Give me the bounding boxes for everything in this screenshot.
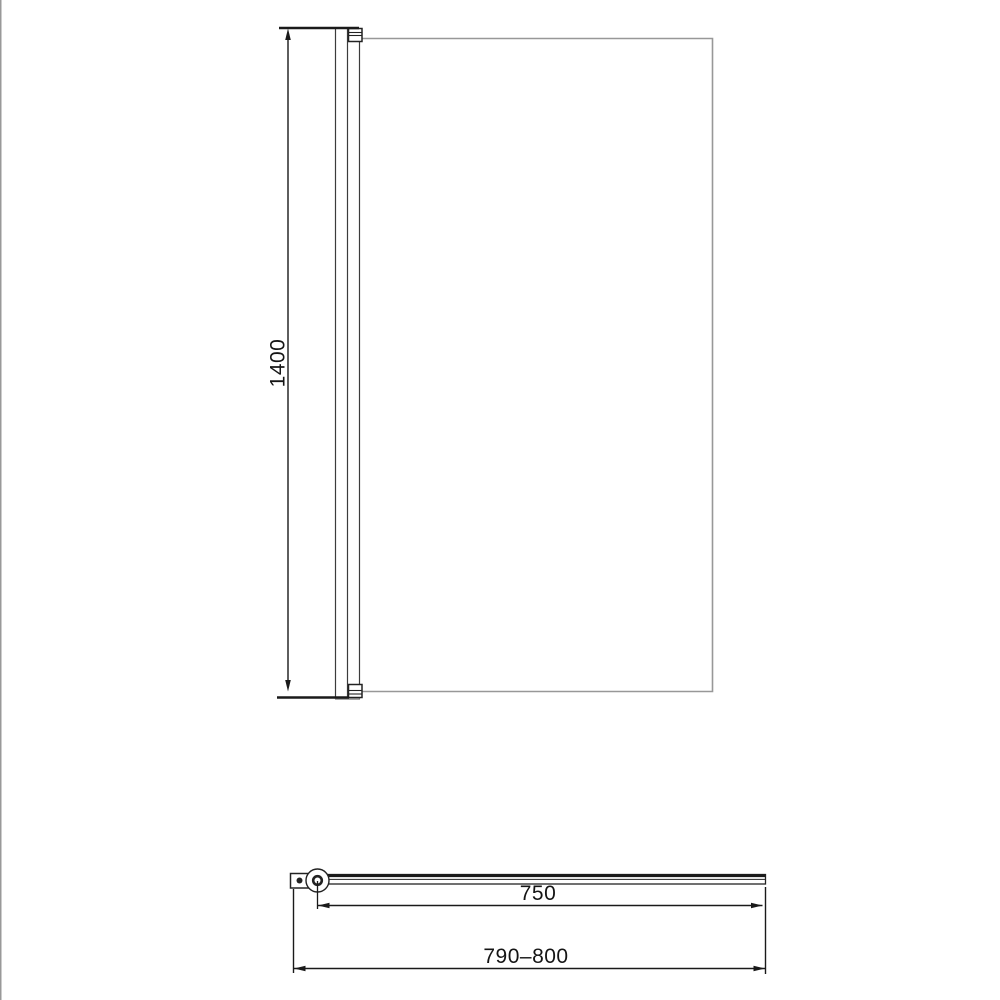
plan-view: 750 790–800 [291, 869, 766, 974]
arrow-right-icon [751, 903, 763, 909]
wall-profile [335, 28, 360, 699]
glass-width-dimension-label: 750 [520, 882, 557, 905]
bottom-clamp-bracket [349, 685, 363, 698]
glass-panel-outline [361, 39, 713, 692]
arrow-right-icon [754, 966, 766, 972]
left-edge-strip [0, 0, 2, 1000]
glass-width-dimension: 750 [318, 882, 763, 908]
arrow-up-icon [285, 29, 291, 41]
height-dimension-label: 1400 [267, 339, 290, 388]
overall-width-dimension-label: 790–800 [483, 945, 568, 968]
arrow-left-icon [294, 966, 306, 972]
arrow-left-icon [318, 903, 330, 909]
front-view: 1400 [267, 28, 713, 699]
technical-drawing: 1400 [0, 0, 1000, 1000]
drawing-svg: 1400 [0, 0, 1000, 1000]
arrow-down-icon [285, 680, 291, 692]
wall-mount-screw-icon [297, 878, 303, 884]
overall-width-dimension: 790–800 [294, 945, 765, 971]
height-dimension: 1400 [267, 29, 291, 692]
top-clamp-bracket [349, 29, 363, 42]
